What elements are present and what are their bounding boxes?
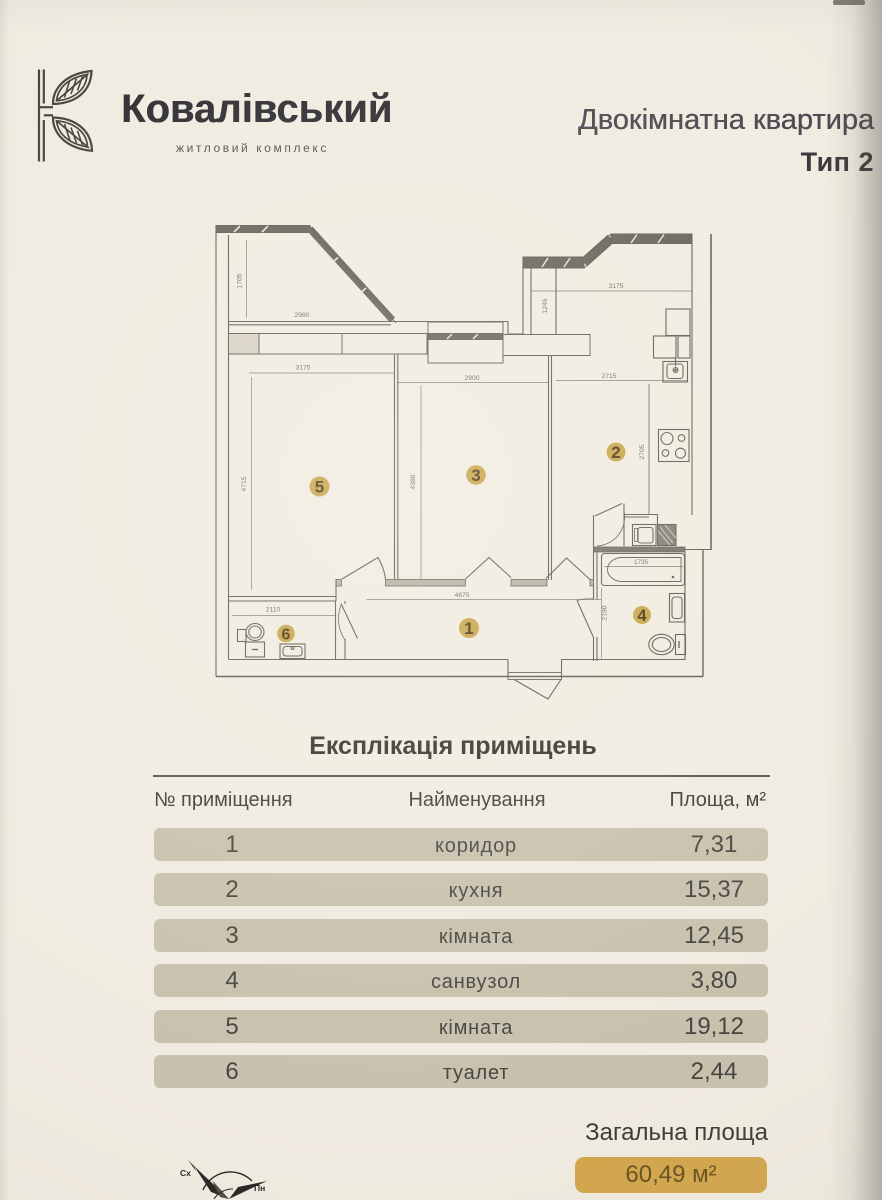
- svg-text:4380: 4380: [410, 474, 417, 489]
- svg-text:1705: 1705: [237, 273, 244, 288]
- svg-text:3175: 3175: [295, 365, 310, 372]
- svg-text:4715: 4715: [241, 476, 248, 491]
- svg-text:2110: 2110: [266, 607, 281, 614]
- svg-text:2980: 2980: [294, 312, 309, 319]
- svg-text:3175: 3175: [608, 283, 623, 290]
- svg-text:1245: 1245: [542, 298, 549, 313]
- svg-text:2900: 2900: [464, 375, 479, 382]
- svg-text:4: 4: [637, 607, 647, 625]
- svg-text:2: 2: [611, 443, 620, 462]
- svg-text:6: 6: [282, 627, 291, 644]
- svg-text:1: 1: [464, 619, 473, 638]
- svg-text:4875: 4875: [454, 592, 469, 599]
- svg-text:1735: 1735: [634, 559, 649, 566]
- svg-text:2715: 2715: [601, 373, 616, 380]
- svg-text:5: 5: [315, 478, 324, 497]
- svg-text:3: 3: [471, 466, 480, 485]
- svg-text:Сх: Сх: [180, 1168, 191, 1178]
- svg-text:2190: 2190: [602, 605, 609, 620]
- svg-text:2705: 2705: [639, 444, 646, 459]
